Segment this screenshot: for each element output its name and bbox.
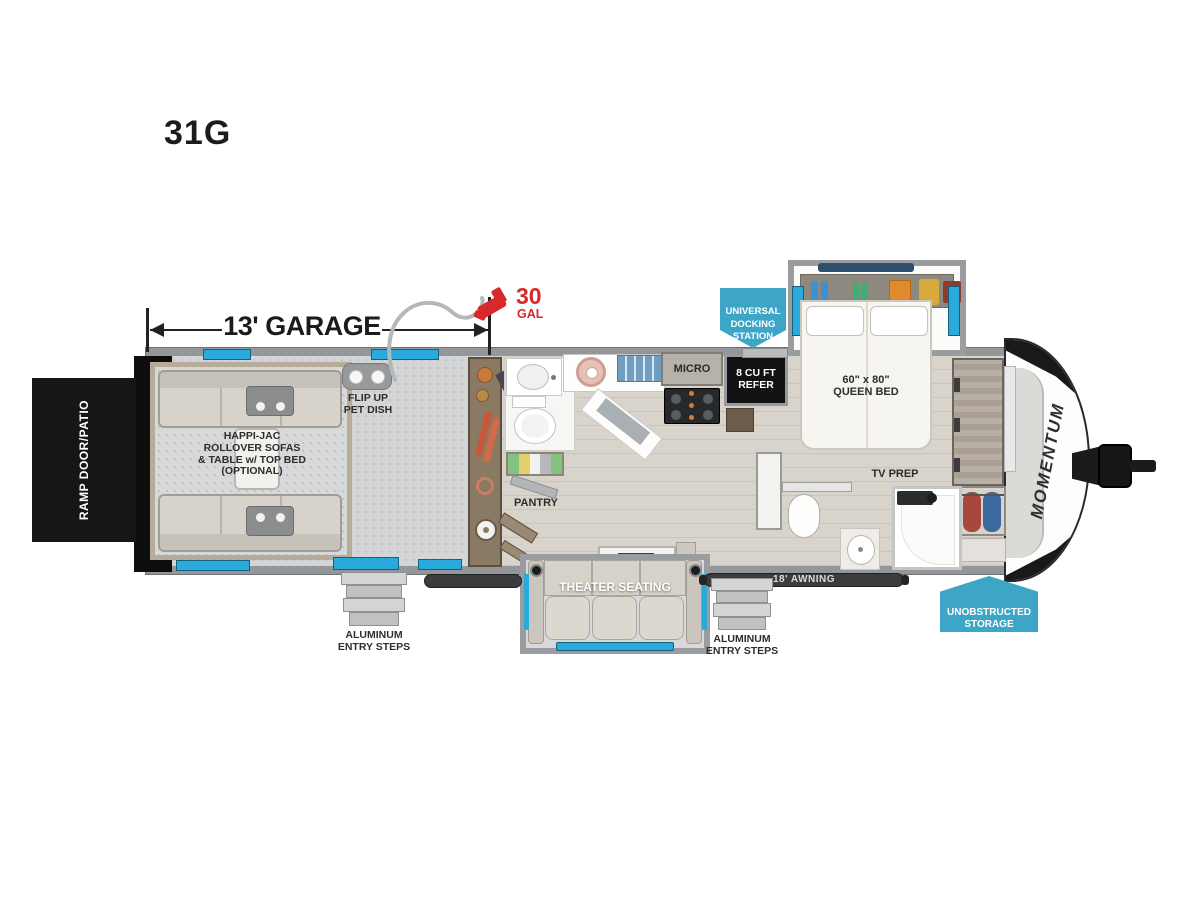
happijac-bracket-top xyxy=(246,386,294,416)
tv-prep-label: TV PREP xyxy=(868,468,922,482)
entry-steps-left-label: ALUMINUM ENTRY STEPS xyxy=(330,630,418,656)
garage-dimension-label: 13' GARAGE xyxy=(222,311,382,347)
entry-steps-left xyxy=(342,572,406,626)
garage-window-top-1 xyxy=(203,349,251,360)
shower xyxy=(892,486,962,570)
led-strip xyxy=(524,574,529,630)
stove xyxy=(664,388,720,424)
pantry-shelves xyxy=(506,452,564,476)
toilet xyxy=(512,396,546,408)
docking-station-hatch xyxy=(742,348,788,358)
theater-seat-cushion xyxy=(639,596,684,640)
tv-panel xyxy=(756,452,782,530)
hanging-clothes-icon xyxy=(983,492,1001,532)
hitch-rod xyxy=(1130,460,1156,472)
docking-station-badge: UNIVERSAL DOCKING STATION xyxy=(720,288,786,348)
microwave: MICRO xyxy=(661,352,723,386)
toilet-bowl xyxy=(514,408,556,444)
wardrobe xyxy=(956,486,1006,536)
garage-window-bottom-2 xyxy=(418,559,462,570)
ramp-door: RAMP DOOR/PATIO xyxy=(32,378,136,542)
mirror xyxy=(1004,366,1016,472)
unobstructed-storage-badge: UNOBSTRUCTED STORAGE xyxy=(940,576,1038,632)
dimension-tick-left xyxy=(146,308,149,352)
hanging-clothes-icon xyxy=(963,492,981,532)
queen-bed-label: 60" x 80" QUEEN BED xyxy=(806,374,926,404)
pillow xyxy=(806,306,864,336)
refrigerator-label: 8 CU FT REFER xyxy=(736,368,776,392)
tv-arm xyxy=(782,482,852,492)
hitch-pin-box xyxy=(1098,444,1132,488)
fuel-pump-icon xyxy=(474,288,516,326)
bottle-icon xyxy=(853,283,859,301)
gear-icon xyxy=(477,521,495,539)
awning-label: 18' AWNING xyxy=(773,574,835,585)
microwave-label: MICRO xyxy=(674,363,711,375)
kitchen-sink xyxy=(576,357,606,387)
pantry-label: PANTRY xyxy=(504,497,568,510)
garage-sofas-label: HAPPI-JAC ROLLOVER SOFAS & TABLE w/ TOP … xyxy=(172,431,332,491)
docking-station-badge-label: UNIVERSAL DOCKING STATION xyxy=(726,306,781,342)
bedroom-slide-glass xyxy=(818,263,914,272)
theater-seat-cushion xyxy=(592,596,637,640)
unobstructed-storage-badge-label: UNOBSTRUCTED STORAGE xyxy=(947,607,1031,631)
open-shelf xyxy=(956,538,1006,562)
awning-bar-left xyxy=(424,574,522,588)
bottle-icon xyxy=(811,281,818,301)
bottle-icon xyxy=(862,283,868,301)
theater-seating-label: THEATER SEATING xyxy=(548,581,682,595)
ottoman xyxy=(788,494,820,538)
cupholder-icon xyxy=(530,564,543,577)
dish-rack xyxy=(617,355,663,382)
vanity-sink xyxy=(840,528,880,570)
pillow xyxy=(870,306,928,336)
garage-window-bottom xyxy=(176,560,250,571)
dimension-arrow-left xyxy=(150,323,164,337)
helmet-icon xyxy=(476,389,489,402)
refrigerator: 8 CU FT REFER xyxy=(724,354,788,406)
entry-door-left xyxy=(333,557,399,570)
awning-endcap xyxy=(901,575,909,585)
theater-seat-cushion xyxy=(545,596,590,640)
pet-dish-label: FLIP UP PET DISH xyxy=(336,393,400,419)
entry-steps-right-label: ALUMINUM ENTRY STEPS xyxy=(698,634,786,660)
bottle-icon xyxy=(821,281,828,301)
bedroom-window-right xyxy=(948,286,960,336)
cabinet xyxy=(726,408,754,432)
awning-endcap xyxy=(699,575,707,585)
floorplan-canvas: 31G MOMENTUM RAMP DOOR/PATIO HAPPI-JAC R… xyxy=(0,0,1200,900)
happijac-bracket-bottom xyxy=(246,506,294,536)
dresser xyxy=(952,358,1004,486)
ramp-door-label: RAMP DOOR/PATIO xyxy=(77,400,91,520)
garage-divider-wall xyxy=(468,357,502,567)
fuel-unit: GAL xyxy=(517,307,557,323)
rope-coil-icon xyxy=(476,477,494,495)
entry-steps-right xyxy=(712,578,772,630)
floorplan-title: 31G xyxy=(164,114,294,158)
fuel-amount: 30 xyxy=(516,284,556,308)
led-strip-front xyxy=(556,642,674,651)
